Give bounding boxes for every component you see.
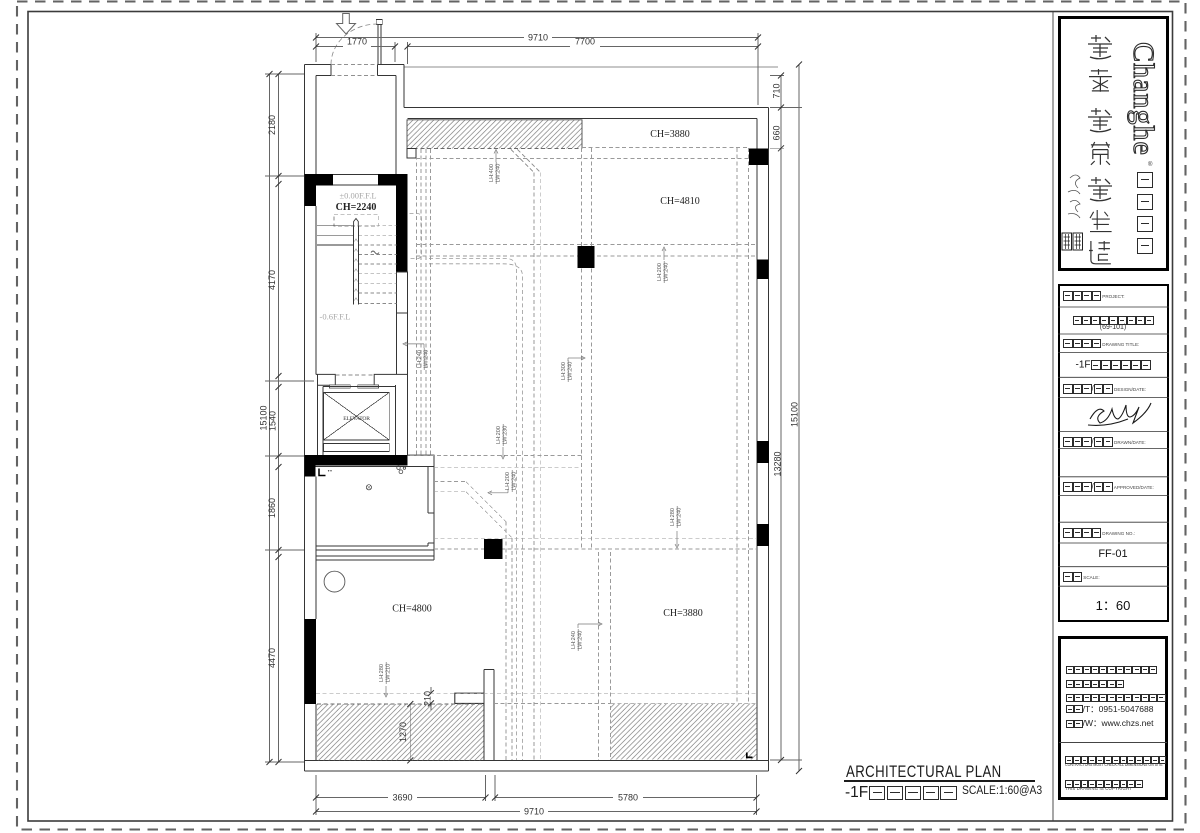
svg-text:LH:300: LH:300: [561, 362, 567, 380]
svg-text:LH:200: LH:200: [505, 472, 511, 490]
svg-text:710: 710: [772, 83, 782, 98]
svg-text:LW:240: LW:240: [568, 362, 574, 381]
svg-text:LW:230: LW:230: [503, 426, 509, 445]
svg-text:LH:240: LH:240: [571, 631, 577, 649]
svg-text:LH:280: LH:280: [670, 508, 676, 526]
svg-text:1270: 1270: [398, 722, 408, 742]
svg-text:15100: 15100: [790, 402, 800, 427]
svg-text:CH=3880: CH=3880: [663, 608, 703, 619]
svg-text:LH:200: LH:200: [496, 426, 502, 444]
svg-text:5780: 5780: [618, 793, 638, 803]
svg-text:±0.00F.F.L: ±0.00F.F.L: [339, 191, 376, 201]
svg-text:LH:280: LH:280: [379, 664, 385, 682]
svg-text:LH:200: LH:200: [657, 263, 663, 281]
svg-text:2180: 2180: [267, 115, 277, 135]
svg-text:LH:240: LH:240: [417, 350, 423, 368]
svg-text:9710: 9710: [524, 807, 544, 817]
svg-text:4170: 4170: [267, 270, 277, 290]
svg-text:1860: 1860: [267, 498, 277, 518]
svg-text:LW:240: LW:240: [578, 631, 584, 650]
svg-text:ELEVATOR: ELEVATOR: [343, 416, 370, 422]
svg-text:LH:400: LH:400: [489, 164, 495, 182]
svg-text:9710: 9710: [528, 33, 548, 43]
svg-text:4470: 4470: [267, 648, 277, 668]
svg-text:13280: 13280: [773, 451, 783, 476]
svg-text:LW:210: LW:210: [386, 664, 392, 683]
svg-text:LW:240: LW:240: [677, 508, 683, 527]
svg-text:3690: 3690: [392, 793, 412, 803]
svg-text:LW:240: LW:240: [664, 263, 670, 282]
svg-text:CH=4810: CH=4810: [660, 196, 700, 207]
svg-text:LW:240: LW:240: [512, 472, 518, 491]
svg-text:660: 660: [772, 125, 782, 140]
svg-text:1540: 1540: [268, 411, 278, 431]
svg-text:LW:240: LW:240: [496, 164, 502, 183]
svg-text:CH=3880: CH=3880: [650, 129, 690, 140]
svg-text:CH=2240: CH=2240: [336, 202, 377, 213]
svg-text:1770: 1770: [347, 37, 367, 47]
svg-text:LW:240: LW:240: [424, 350, 430, 369]
svg-text:-0.6F.F.L: -0.6F.F.L: [320, 312, 351, 322]
svg-text:210: 210: [423, 691, 433, 706]
svg-text:7700: 7700: [575, 37, 595, 47]
svg-text:CH=4800: CH=4800: [392, 604, 432, 615]
